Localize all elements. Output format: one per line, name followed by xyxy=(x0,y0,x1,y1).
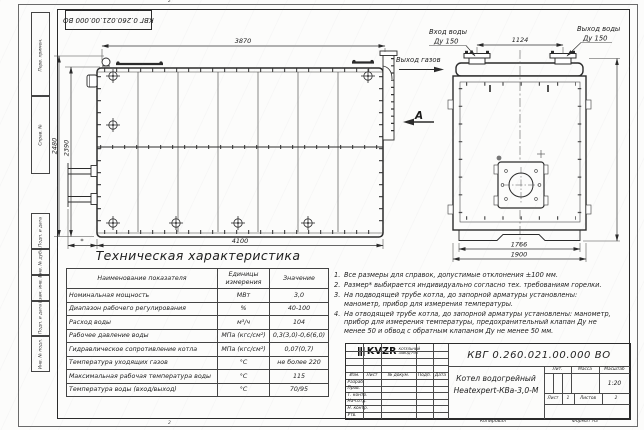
rev-header-izm: Изм. xyxy=(346,372,363,379)
inlet-label-line1: Вход воды xyxy=(429,28,468,36)
table-row: Температура воды (вход/выход)°С70/95 xyxy=(67,383,329,397)
table-row: Максимальная рабочая температура воды°С1… xyxy=(67,370,329,384)
dim-height-outer: 2480 xyxy=(51,138,59,155)
dim-length-bottom: 4100 xyxy=(232,237,249,245)
sign-utv: Утв. xyxy=(346,412,383,420)
copied-label: Копировал xyxy=(448,419,538,424)
notes-list: 1.Все размеры для справок, допустимые от… xyxy=(334,271,612,337)
gas-outlet-label: Выход газов xyxy=(396,56,441,64)
title-block: Изм. Лист № докум. Подп. Дата Разраб. Пр… xyxy=(345,343,631,420)
table-row: Рабочее давление водыМПа (кгс/см²)0,3(3,… xyxy=(67,329,329,343)
rev-header-podp: Подп. xyxy=(416,372,433,379)
scale-label: Масштаб xyxy=(599,366,630,373)
gas-flow-arrow xyxy=(399,67,444,72)
view-a-label: А xyxy=(414,110,423,122)
outlet-label-line1: Выход воды xyxy=(577,25,621,33)
dim-width-inner: 1766 xyxy=(511,241,528,249)
sheets-label: Листов xyxy=(574,393,602,404)
table-row: Номинальная мощностьМВт3,0 xyxy=(67,289,329,303)
table-row: Гидравлическое сопротивление котлаМПа (к… xyxy=(67,343,329,357)
tech-table-title: Техническая характеристика xyxy=(88,248,308,263)
col-header-value: Значение xyxy=(270,269,329,289)
table-row: Температура уходящих газов°Сне более 220 xyxy=(67,356,329,370)
col-header-unit: Единицы измерения xyxy=(218,269,270,289)
rev-header-data: Дата xyxy=(433,372,448,379)
scale-value: 1:20 xyxy=(599,373,630,393)
sheets-value: 2 xyxy=(602,393,630,404)
dim-nozzle-spacing: 1124 xyxy=(512,36,529,44)
lit-label: Лит. xyxy=(544,366,571,373)
table-header-row: Наименование показателя Единицы измерени… xyxy=(67,269,329,289)
table-row: Диапазон рабочего регулирования%40-100 xyxy=(67,302,329,316)
burner-plate xyxy=(494,162,548,208)
rev-header-docnum: № докум. xyxy=(381,372,416,379)
doc-number: КВГ 0.260.021.00.000 ВО xyxy=(448,344,630,366)
note-item: 1.Все размеры для справок, допустимые от… xyxy=(334,271,612,280)
note-item: 3.На подводящей трубе котла, до запорной… xyxy=(334,291,612,309)
inlet-label-line2: Ду 150 xyxy=(433,38,458,46)
main-view-boiler-side: 3870 2480 2390 * 4100 xyxy=(51,37,398,249)
product-name: Котел водогрейный Heatexpert-КВа-3,0-М xyxy=(448,366,544,404)
table-row: Расход водым³/ч104 xyxy=(67,316,329,330)
sheet-value: 1 xyxy=(562,393,574,404)
format-label: Формат А3 xyxy=(545,419,625,424)
base-skirt xyxy=(459,230,580,241)
end-view-boiler-front: Вход воды Ду 150 Выход воды Ду 150 1124 … xyxy=(429,25,621,262)
note-item: 2.Размер* выбирается индивидуально согла… xyxy=(334,281,612,290)
outlet-label-line2: Ду 150 xyxy=(582,35,607,43)
dim-length-top: 3870 xyxy=(235,37,252,45)
dim-width-overall: 1900 xyxy=(511,251,528,259)
dim-height-inner: 2390 xyxy=(63,140,71,157)
sheet-label: Лист xyxy=(544,393,562,404)
col-header-name: Наименование показателя xyxy=(67,269,218,289)
burner-mount-bracket xyxy=(68,75,97,207)
tech-characteristics-table: Наименование показателя Единицы измерени… xyxy=(66,268,329,397)
rev-header-list: Лист xyxy=(363,372,381,379)
dim-burner-asterisk: * xyxy=(80,237,84,245)
drawing-sheet: 2 2 Перв. примен. Справ. № Подп. и дата … xyxy=(0,0,644,430)
mass-label: Масса xyxy=(571,366,599,373)
small-fitting xyxy=(497,156,502,161)
top-fittings xyxy=(102,58,374,66)
note-item: 4.На отводящей трубе котла, до запорной … xyxy=(334,310,612,337)
